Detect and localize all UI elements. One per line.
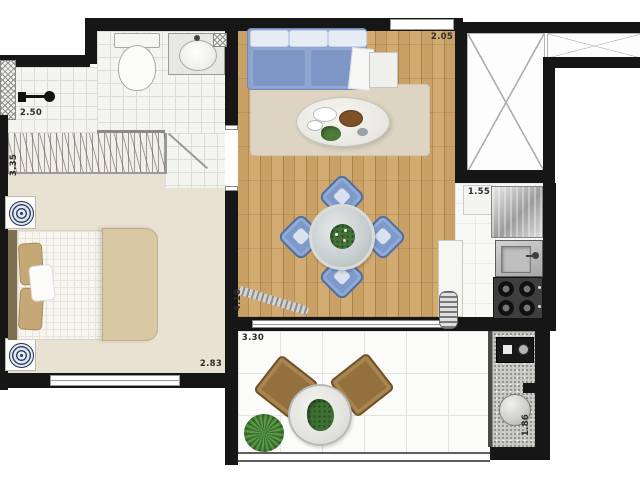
spiral-decor-icon (9, 201, 34, 226)
burner-icon (498, 300, 514, 316)
measurement-shower: 2.50 (14, 108, 48, 118)
grill-dial (518, 344, 529, 355)
balcony-plant-icon (307, 399, 334, 431)
shower-rose (44, 91, 55, 102)
burner-icon (498, 281, 514, 297)
chair-cushion (333, 187, 351, 205)
toilet-icon (112, 33, 160, 91)
wall-kitchen-right (543, 183, 556, 330)
toilet-bowl (118, 45, 156, 91)
wall-top-right (457, 22, 640, 33)
wall-service-bottom (490, 447, 550, 460)
nightstand (5, 196, 36, 229)
bed-duvet (102, 228, 158, 341)
entry-door (390, 19, 454, 30)
spiral-decor-icon (9, 343, 34, 368)
door-jamb-bottom (225, 186, 238, 191)
flower-dot (344, 229, 347, 232)
shaft-panel-vertical (467, 33, 545, 172)
sofa-seat-cushion (251, 48, 307, 88)
sofa-back-cushion (250, 30, 289, 47)
bed (8, 228, 158, 341)
flower-dot (343, 239, 346, 242)
bed-pillow-white (28, 264, 56, 302)
stove-icon (493, 277, 543, 319)
closet (8, 133, 167, 174)
floor-plant-icon (244, 414, 284, 452)
bowl-icon (339, 110, 363, 127)
measurement-living-entry: 2.05 (426, 32, 458, 42)
measurement-bedroom-depth: 3.35 (9, 147, 19, 183)
measurement-service-depth: 1.86 (521, 407, 531, 443)
kitchen-sink-icon (495, 240, 543, 277)
kitchen-drainer (491, 186, 543, 238)
wall-shaft-bottom (455, 170, 555, 183)
balcony-rail (238, 452, 490, 462)
sofa-back-cushion (289, 30, 328, 47)
wall-shaft-corner (545, 57, 640, 68)
wall-shaft-mid (543, 57, 555, 183)
balcony-table (288, 384, 352, 446)
shower-pipe (24, 95, 46, 98)
wall-service-nub (523, 383, 550, 393)
burner-icon (519, 300, 535, 316)
stove-knob (538, 305, 541, 308)
chair-cushion (374, 227, 392, 245)
measurement-bedroom-width: 2.83 (194, 359, 228, 369)
shower-head-icon (18, 86, 58, 104)
centerpiece-plant-icon (330, 224, 355, 249)
door-jamb-top (225, 125, 238, 130)
stove-knob (538, 286, 541, 289)
sink-basin (501, 246, 531, 273)
chair-cushion (292, 227, 310, 245)
bed-headboard (8, 230, 17, 340)
bathroom-hall-partition (97, 130, 165, 133)
bathroom-sink-basin (179, 40, 217, 71)
grill-plate (503, 345, 512, 354)
curtain-coil-icon (439, 291, 458, 329)
coffee-table (296, 97, 390, 147)
floorplan-canvas: 2.50 3.35 2.83 2.05 4.10 3.30 1.55 1.86 (0, 0, 640, 480)
faucet-spout (526, 255, 534, 257)
side-table (369, 52, 398, 88)
bedroom-window (50, 375, 180, 386)
cup-icon (357, 128, 368, 136)
hall-floor (165, 133, 225, 188)
plant-icon (321, 126, 341, 141)
measurement-living-depth: 4.10 (233, 282, 243, 318)
wall-service-right (535, 331, 550, 460)
dining-table (309, 204, 375, 270)
faucet-icon (194, 35, 200, 41)
sliding-door (252, 320, 454, 328)
nightstand (5, 338, 36, 371)
service-divider-wall (488, 331, 492, 447)
shaft-panel-horizontal (547, 33, 640, 59)
wall-shaft-left (455, 22, 467, 183)
measurement-balcony: 3.30 (237, 333, 269, 343)
grill-icon (496, 337, 534, 363)
burner-icon (519, 281, 535, 297)
measurement-kitchen: 1.55 (464, 187, 494, 197)
corner-drain-icon (213, 33, 227, 47)
sofa-back-cushion (328, 30, 367, 47)
flower-dot (335, 233, 338, 236)
